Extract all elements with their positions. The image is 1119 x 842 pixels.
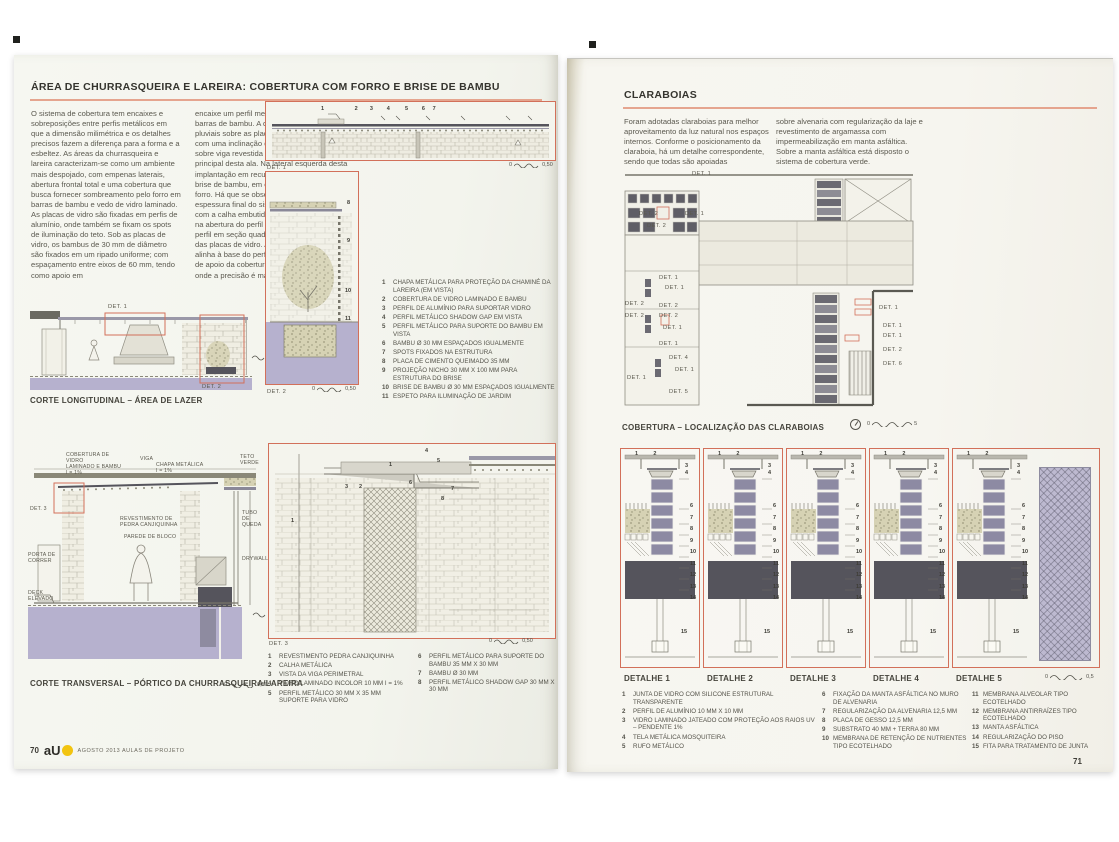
skylight-section-svg: [621, 449, 699, 667]
detalhe-2-header: DETALHE 2: [707, 674, 753, 683]
detail-2-drawing: 8 9 10 11: [265, 171, 359, 385]
label-viga: VIGA: [140, 457, 153, 463]
detail-3-callout: 5: [437, 458, 440, 464]
plan-det-tag: DET. 1: [665, 285, 684, 291]
scale-zero: 0: [489, 638, 492, 644]
legend-item: 2PERFIL DE ALUMÍNIO 10 MM X 10 MM: [622, 708, 817, 716]
legend-item: 8PLACA DE GESSO 12,5 MM: [822, 717, 967, 725]
detail-1-drawing: 1 2 3 4 5 6 7: [265, 101, 556, 161]
plan-det-tag: DET. 1: [883, 333, 902, 339]
detail-callout-column: 6 7 8 9 10 11 12 13 14: [773, 501, 779, 605]
intro-column-2: sobre alvenaria com regularização da laj…: [776, 117, 928, 167]
detail-callout-top: 1 2: [718, 451, 739, 457]
plan-det-tag: DET. 1: [663, 325, 682, 331]
caption-corte-longitudinal: CORTE LONGITUDINAL – ÁREA DE LAZER: [30, 396, 203, 405]
detail-callout-top: 1 2: [635, 451, 656, 457]
detail-callout-top: 1 2: [801, 451, 822, 457]
label-porta-correr: PORTA DE CORRER: [28, 553, 55, 565]
scale-half: 0,50: [542, 162, 553, 168]
detail-callout-15: 15: [764, 629, 770, 635]
detail-3-callout: 1: [389, 462, 392, 468]
legend-portico-left: 1REVESTIMENTO PEDRA CANJIQUINHA 2CALHA M…: [268, 653, 412, 706]
legend-claraboias-col1: 1JUNTA DE VIDRO COM SILICONE ESTRUTURAL …: [622, 691, 817, 752]
legend-item: 13MANTA ASFÁLTICA: [972, 724, 1104, 732]
north-arrow-icon: [850, 419, 861, 430]
au-logo: aU: [44, 743, 73, 758]
page-left-title: ÁREA DE CHURRASQUEIRA E LAREIRA: COBERTU…: [31, 81, 500, 93]
legend-item: 1CHAPA METÁLICA PARA PROTEÇÃO DA CHAMINÉ…: [382, 279, 556, 294]
plan-det-tag: DET. 1: [627, 375, 646, 381]
legend-item: 15FITA PARA TRATAMENTO DE JUNTA: [972, 743, 1104, 751]
plan-det-tag: DET. 2: [883, 347, 902, 353]
caption-roof-plan: COBERTURA – LOCALIZAÇÃO DAS CLARABOIAS: [622, 423, 824, 432]
detail-3-callout: 1: [291, 518, 294, 524]
legend-item: 11MEMBRANA ALVEOLAR TIPO ECOTELHADO: [972, 691, 1104, 706]
detalhe-4-drawing: 1 2 3 4 6 7 8 9 10 11 12 13 14 15: [869, 448, 949, 668]
detalhe-3-drawing: 1 2 3 4 6 7 8 9 10 11 12 13 14 15: [786, 448, 866, 668]
scale-half: 0,5: [1086, 674, 1094, 680]
plan-det-tag: DET. 2: [647, 223, 666, 229]
plan-det-tag: DET. 2: [659, 313, 678, 319]
scale-five: 5: [914, 421, 917, 427]
page-number-left: 70: [30, 746, 39, 755]
detail-callout-column: 6 7 8 9 10 11 12 13 14: [939, 501, 945, 605]
legend-item: 1REVESTIMENTO PEDRA CANJIQUINHA: [268, 653, 412, 661]
plan-det-tag: DET. 5: [669, 389, 688, 395]
detail-callout-15: 15: [1013, 629, 1019, 635]
plan-det-tag: DET. 1: [675, 367, 694, 373]
detalhe-3-header: DETALHE 3: [790, 674, 836, 683]
label-drywall: DRYWALL: [242, 557, 268, 563]
detail-callout-15: 15: [930, 629, 936, 635]
detail-3-section-svg: [269, 444, 555, 638]
plan-det-tag: DET. 2: [625, 301, 644, 307]
label-cobertura-vidro: COBERTURA DE VIDRO LAMINADO E BAMBU I = …: [66, 453, 124, 477]
au-logo-text: aU: [44, 743, 61, 758]
legend-item: 4PERFIL METÁLICO SHADOW GAP EM VISTA: [382, 314, 556, 322]
detalhe-5-header: DETALHE 5: [956, 674, 1002, 683]
legend-item: 9SUBSTRATO 40 MM + TERRA 80 MM: [822, 726, 967, 734]
scale-zero: 0: [867, 421, 870, 427]
detail-2-callout: 10: [345, 288, 351, 294]
legend-item: 3VIDRO LAMINADO JATEADO COM PROTEÇÃO AOS…: [622, 717, 817, 732]
detail-2-label: DET. 2: [267, 389, 286, 395]
registration-mark: [589, 41, 596, 48]
label-tubo-queda: TUBO DE QUEDA: [242, 511, 266, 529]
plan-scale: 0 5: [867, 420, 917, 427]
label-deck-elevado: DECK ELEVADO: [28, 591, 54, 603]
footer-left: 70 aU AGOSTO 2013 AULAS DE PROJETO: [30, 743, 185, 758]
legend-item: 10MEMBRANA DE RETENÇÃO DE NUTRIENTES TIP…: [822, 735, 967, 750]
corte-longitudinal-svg: [30, 303, 266, 393]
detail-3-callout: 4: [425, 448, 428, 454]
plan-det-tag: DET. 1: [692, 171, 711, 177]
detail-2-callout: 8: [347, 200, 350, 206]
detalhe-4-header: DETALHE 4: [873, 674, 919, 683]
detail-callout-34: 3 4: [768, 463, 771, 477]
legend-item: 6FIXAÇÃO DA MANTA ASFÁLTICA NO MURO DE A…: [822, 691, 967, 706]
detail-3-callout: 6: [409, 480, 412, 486]
scale-squiggle: [1050, 673, 1084, 680]
skylight-section-svg: [704, 449, 782, 667]
detalhe-1-drawing: 1 2 3 4 6 7 8 9 10 11 12 13 14 15: [620, 448, 700, 668]
plan-det-tag: DET. 2: [659, 303, 678, 309]
detail-callout-column: 6 7 8 9 10 11 12 13 14: [1022, 501, 1028, 605]
detail-callout-top: 1 2: [884, 451, 905, 457]
plan-det-tag: DET. 1: [659, 341, 678, 347]
registration-mark: [13, 36, 20, 43]
detail-callout-top: 1 2: [967, 451, 988, 457]
intro-column-1: O sistema de cobertura tem encaixes e so…: [31, 109, 181, 281]
legend-item: 3PERFIL DE ALUMÍNIO PARA SUPORTAR VIDRO: [382, 305, 556, 313]
scale-squiggle: [872, 420, 912, 427]
label-revestimento: REVESTIMENTO DE PEDRA CANJIQUINHA: [120, 517, 178, 529]
legend-item: 12MEMBRANA ANTIRRAÍZES TIPO ECOTELHADO: [972, 708, 1104, 723]
detalhe-1-header: DETALHE 1: [624, 674, 670, 683]
legend-item: 5RUFO METÁLICO: [622, 743, 817, 751]
detail-callout-34: 3 4: [685, 463, 688, 477]
label-teto-verde: TETO VERDE: [240, 455, 259, 467]
detail-1-scale: 0 0,50: [509, 162, 553, 168]
scale-zero: 0: [312, 386, 315, 392]
corte-transversal-svg: [28, 445, 266, 673]
legend-item: 6BAMBU Ø 30 MM ESPAÇADOS IGUALMENTE: [382, 340, 556, 348]
corte-longitudinal-drawing: DET. 1 DET. 2: [30, 303, 266, 393]
label-chapa-metalica: CHAPA METÁLICA I = 1%: [156, 463, 203, 475]
transversal-det3-tag: DET. 3: [30, 507, 47, 513]
detail-3-callout: 7: [451, 486, 454, 492]
skylight-section-svg: [953, 449, 1031, 667]
detail-callout-15: 15: [681, 629, 687, 635]
au-logo-dot-icon: [62, 745, 73, 756]
detalhe-2-drawing: 1 2 3 4 6 7 8 9 10 11 12 13 14 15: [703, 448, 783, 668]
caption-corte-transversal: CORTE TRANSVERSAL – PÓRTICO DA CHURRASQU…: [30, 679, 303, 688]
legend-item: 7BAMBU Ø 30 MM: [418, 670, 558, 678]
legend-item: 2COBERTURA DE VIDRO LAMINADO E BAMBU: [382, 296, 556, 304]
scale-squiggle: [514, 162, 540, 168]
plan-det-tag: DET. 2: [625, 313, 644, 319]
legend-item: 5PERFIL METÁLICO PARA SUPORTE DO BAMBU E…: [382, 323, 556, 338]
detail-2-callout: 11: [345, 316, 351, 322]
legend-item: 11ESPETO PARA ILUMINAÇÃO DE JARDIM: [382, 393, 556, 401]
longitudinal-det1-tag: DET. 1: [108, 304, 127, 310]
legend-item: 4VIDRO LAMINADO INCOLOR 10 MM I = 1%: [268, 680, 412, 688]
legend-item: 6PERFIL METÁLICO PARA SUPORTE DO BAMBU 3…: [418, 653, 558, 668]
plan-det-tag: DET. 6: [883, 361, 902, 367]
detail-callout-34: 3 4: [851, 463, 854, 477]
intro-column-1: Foram adotadas claraboias para melhor ap…: [624, 117, 770, 167]
plan-det-tag: DET. 2: [639, 211, 658, 217]
detail-callout-34: 3 4: [1017, 463, 1020, 477]
detail-3-drawing: 1 3 2 4 5 6 7 8 1: [268, 443, 556, 639]
legend-item: 4TELA METÁLICA MOSQUITEIRA: [622, 734, 817, 742]
legend-item: 3VISTA DA VIGA PERIMETRAL: [268, 671, 412, 679]
legend-item: 8PERFIL METÁLICO SHADOW GAP 30 MM X 30 M…: [418, 679, 558, 694]
legend-item: 9PROJEÇÃO NICHO 30 MM X 100 MM PARA ESTR…: [382, 367, 556, 382]
detail-2-section-svg: [266, 172, 358, 384]
legend-item: 14REGULARIZAÇÃO DO PISO: [972, 734, 1104, 742]
detail-2-callout: 9: [347, 238, 350, 244]
scale-zero: 0: [509, 162, 512, 168]
scale-half: 0,50: [345, 386, 356, 392]
detail-callout-34: 3 4: [934, 463, 937, 477]
skylight-section-svg: [870, 449, 948, 667]
detail-3-scale: 0 0,50: [489, 638, 533, 644]
legend-item: 2CALHA METÁLICA: [268, 662, 412, 670]
plan-det-tag: DET. 4: [669, 355, 688, 361]
roof-plan-svg: [617, 163, 917, 419]
footer-issue-text: AGOSTO 2013 AULAS DE PROJETO: [78, 748, 185, 754]
longitudinal-det2-tag: DET. 2: [202, 384, 221, 390]
legend-item: 1JUNTA DE VIDRO COM SILICONE ESTRUTURAL …: [622, 691, 817, 706]
detail-callout-15: 15: [847, 629, 853, 635]
plan-det-tag: DET. 1: [879, 305, 898, 311]
detail-1-callout-row: 1 2 3 4 5 6 7: [321, 106, 436, 112]
legend-item: 8PLACA DE CIMENTO QUEIMADO 35 MM: [382, 358, 556, 366]
scale-half: 0,50: [522, 638, 533, 644]
detail-3-callout: 3: [345, 484, 348, 490]
detalhe-5-drawing: 1 2 3 4 6 7 8 9 10 11 12 13 14 15: [952, 448, 1100, 668]
detail-callout-column: 6 7 8 9 10 11 12 13 14: [690, 501, 696, 605]
page-right: CLARABOIAS Foram adotadas claraboias par…: [567, 58, 1113, 772]
legend-roof-system: 1CHAPA METÁLICA PARA PROTEÇÃO DA CHAMINÉ…: [382, 279, 556, 402]
plan-det-tag: DET. 1: [883, 323, 902, 329]
detail-3-label: DET. 3: [269, 641, 288, 647]
legend-claraboias-col2: 6FIXAÇÃO DA MANTA ASFÁLTICA NO MURO DE A…: [822, 691, 967, 752]
page-number-right: 71: [1073, 757, 1082, 766]
roof-plan-drawing: DET. 1 DET. 2 DET. 2 DET. 1 DET. 1 DET. …: [617, 163, 917, 419]
scale-zero: 0: [1045, 674, 1048, 680]
skylight-section-svg: [787, 449, 865, 667]
magazine-spread: { "colors":{"accent_red":"#d2705a","lave…: [0, 0, 1119, 842]
detail-callout-column: 6 7 8 9 10 11 12 13 14: [856, 501, 862, 605]
detail-3-callout: 2: [359, 484, 362, 490]
page-left: ÁREA DE CHURRASQUEIRA E LAREIRA: COBERTU…: [14, 55, 558, 769]
chimney-hatch-fill: [1039, 467, 1091, 661]
legend-item: 10BRISE DE BAMBU Ø 30 MM ESPAÇADOS IGUAL…: [382, 384, 556, 392]
detail-3-callout: 8: [441, 496, 444, 502]
legend-item: 7SPOTS FIXADOS NA ESTRUTURA: [382, 349, 556, 357]
legend-item: 7REGULARIZAÇÃO DA ALVENARIA 12,5 MM: [822, 708, 967, 716]
plan-det-tag: DET. 1: [685, 211, 704, 217]
legend-portico-right: 6PERFIL METÁLICO PARA SUPORTE DO BAMBU 3…: [418, 653, 558, 696]
corte-transversal-drawing: VIGA COBERTURA DE VIDRO LAMINADO E BAMBU…: [28, 445, 266, 673]
page-right-title: CLARABOIAS: [624, 89, 697, 101]
title-rule: [623, 107, 1097, 109]
plan-det-tag: DET. 1: [659, 275, 678, 281]
label-parede-bloco: PAREDE DE BLOCO: [124, 535, 176, 541]
detail-2-scale: 0 0,50: [312, 386, 356, 392]
scale-squiggle: [317, 386, 343, 392]
legend-item: 5PERFIL METÁLICO 30 MM X 35 MM SUPORTE P…: [268, 690, 412, 705]
details-scale: 0 0,5: [1045, 673, 1094, 680]
legend-claraboias-col3: 11MEMBRANA ALVEOLAR TIPO ECOTELHADO 12ME…: [972, 691, 1104, 752]
scale-squiggle: [494, 638, 520, 644]
